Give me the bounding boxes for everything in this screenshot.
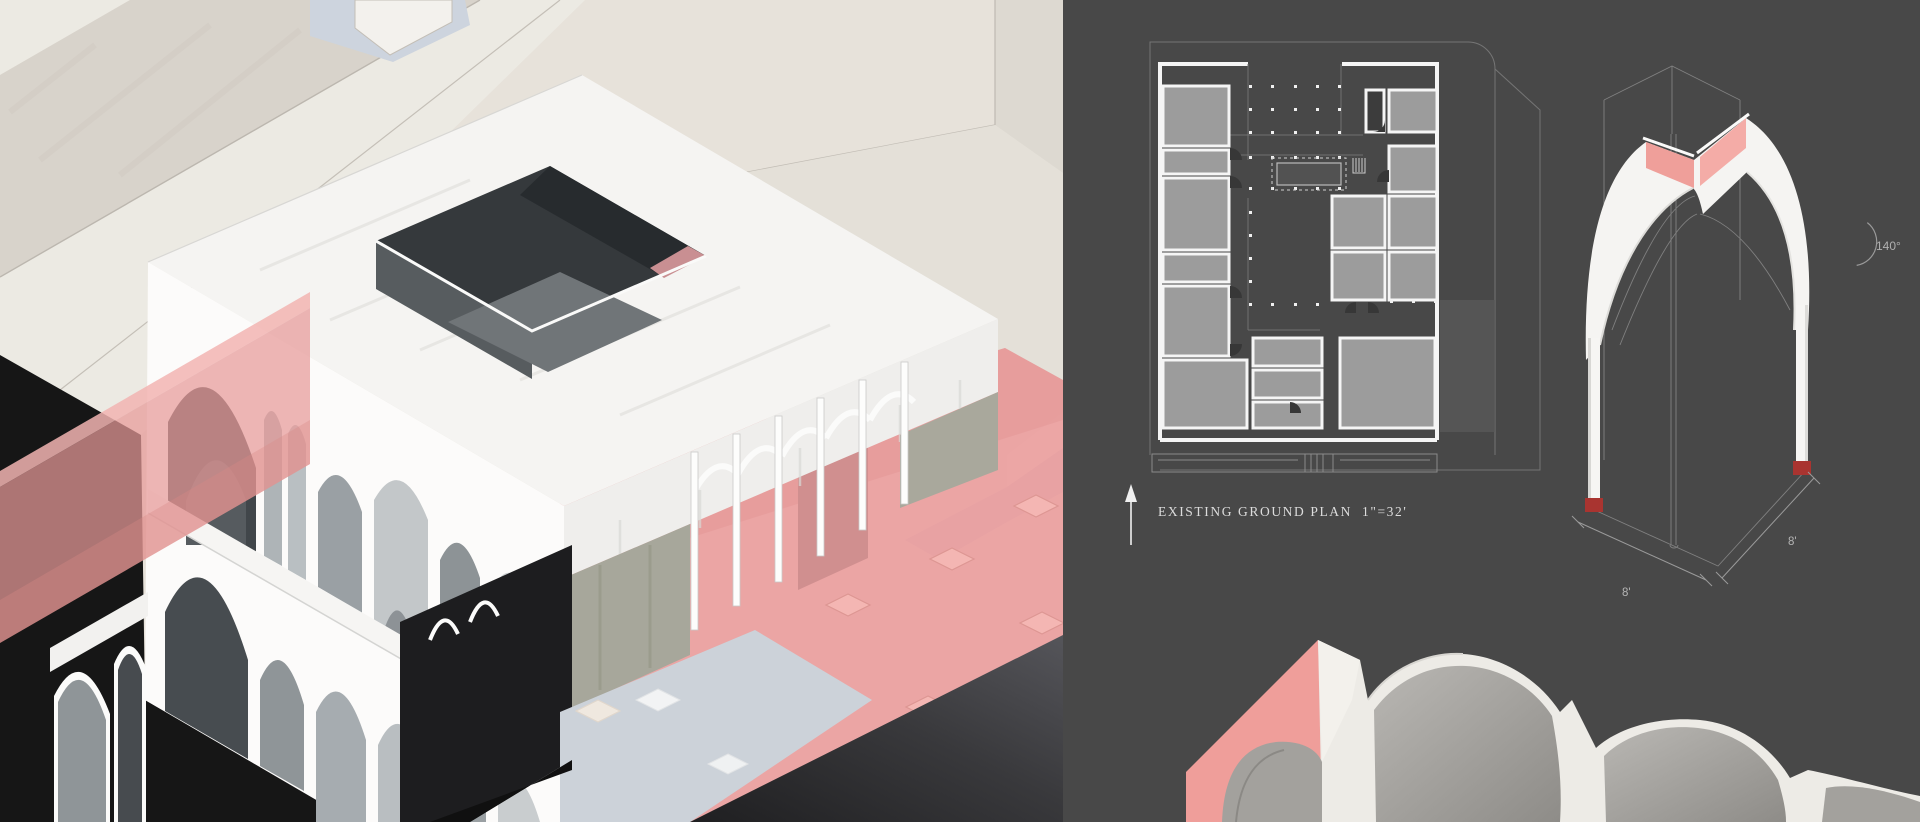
- presentation-board: EXISTING GROUND PLAN1"=32': [0, 0, 1920, 822]
- plan-pool: [1272, 158, 1346, 190]
- board-canvas: EXISTING GROUND PLAN1"=32': [0, 0, 1920, 822]
- adjacent-footprint: [1440, 300, 1495, 432]
- plan-title: EXISTING GROUND PLAN1"=32': [1158, 504, 1407, 519]
- drawing-panel: EXISTING GROUND PLAN1"=32': [1063, 0, 1920, 822]
- angle-label: 140°: [1876, 239, 1901, 253]
- dim-left-label: 8': [1622, 587, 1631, 599]
- site-axonometric: [0, 0, 1064, 822]
- red-base-left: [1585, 498, 1603, 512]
- dim-right-label: 8': [1788, 536, 1797, 548]
